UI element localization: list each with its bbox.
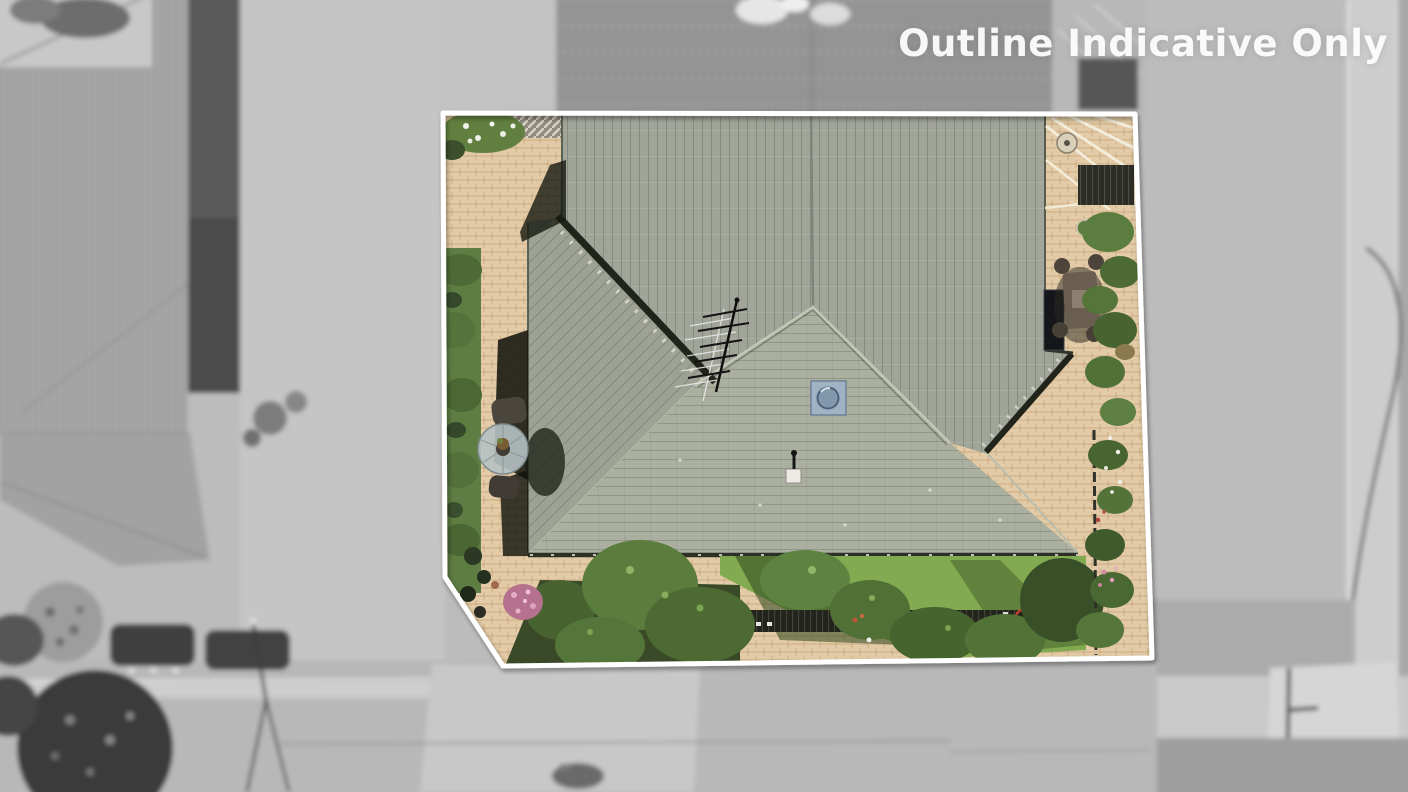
flower-bush-pink (503, 584, 543, 620)
top-left-path (0, 0, 152, 67)
aerial-scene (0, 0, 1408, 792)
aerial-photo: Outline Indicative Only (0, 0, 1408, 792)
house-roof (528, 108, 1078, 555)
property-interior (435, 105, 1160, 680)
manhole (552, 763, 604, 789)
watermark-text: Outline Indicative Only (898, 22, 1388, 65)
skylight (811, 381, 846, 415)
driveway (240, 0, 445, 692)
bottom-street (0, 660, 1157, 792)
